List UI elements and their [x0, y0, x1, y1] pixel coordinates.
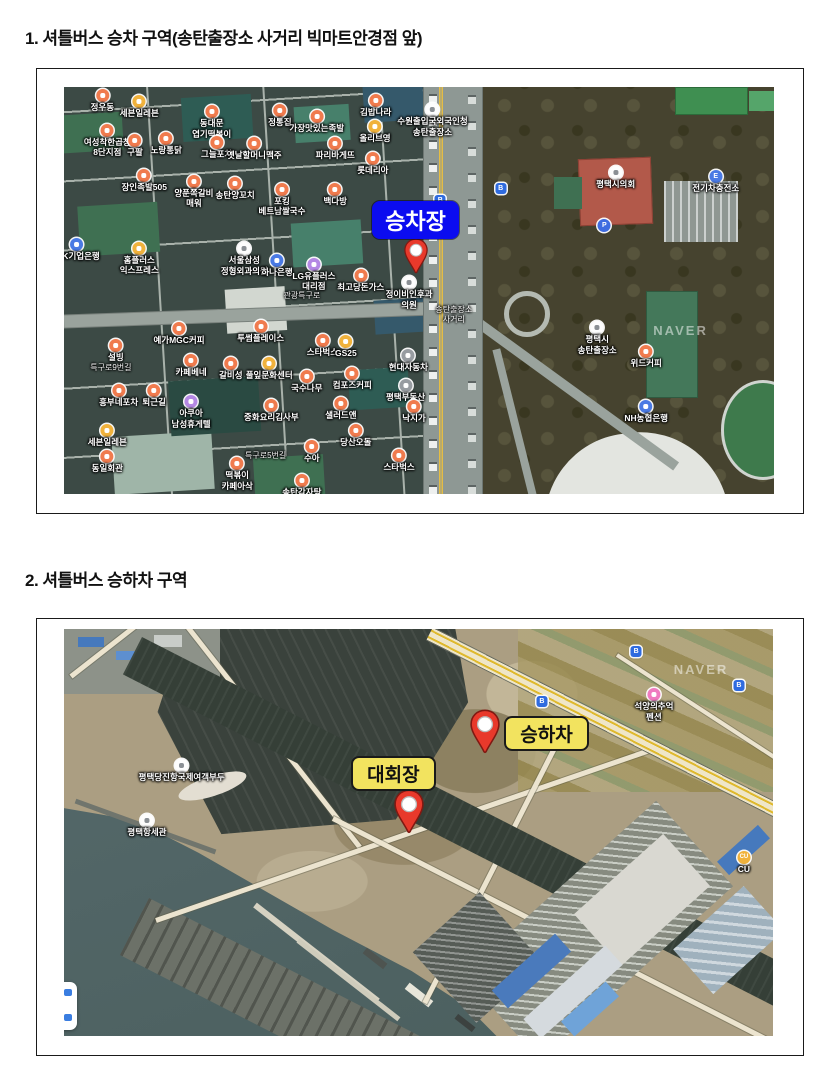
- poi-icon: [640, 400, 653, 413]
- poi-label-text: 흥부네포차: [99, 398, 138, 408]
- map-poi-orange-icon: 파리바게뜨: [316, 137, 355, 161]
- poi-icon: [329, 137, 342, 150]
- poi-label-text: 투썸플레이스: [237, 334, 284, 344]
- poi-icon: [133, 95, 146, 108]
- map-poi-blue-icon: E전기차충전소: [692, 170, 739, 194]
- road-name-label: 특구로5번길: [245, 451, 286, 461]
- poi-label-text: 남성휴게텔: [172, 420, 211, 430]
- poi-icon: [300, 370, 313, 383]
- poi-icon: [366, 152, 379, 165]
- poi-icon: [96, 89, 109, 102]
- poi-icon: [109, 339, 122, 352]
- map-poi-pink-icon: 석양의추억펜션: [634, 688, 673, 722]
- poi-icon: [609, 166, 622, 179]
- map-zoom-control: [64, 982, 77, 1030]
- map-poi-orange-icon: 정우동: [91, 89, 114, 113]
- poi-icon: [273, 104, 286, 117]
- poi-label-text: IBK기업은행: [64, 252, 100, 262]
- poi-label-text: 김밥나라: [360, 108, 391, 118]
- map-poi-orange-icon: 카페베네: [175, 354, 206, 378]
- map-poi-bus-icon: B: [495, 183, 506, 194]
- poi-label-text: 여성착한곱창: [84, 138, 131, 148]
- poi-label-text: 올리브영: [359, 134, 390, 144]
- map-poi-orange-icon: 옛날할머니맥주: [227, 137, 282, 161]
- poi-label-text: 낙지가: [402, 414, 425, 424]
- poi-label-text: GS25: [335, 349, 357, 359]
- map-poi-white-icon: 수원출입국외국인청송탄출장소: [397, 103, 467, 137]
- poi-label-text: 하나은행: [261, 268, 292, 278]
- poi-label-text: 송탄출장소: [578, 346, 617, 356]
- poi-icon: [346, 367, 359, 380]
- poi-icon: [138, 169, 151, 182]
- map-poi-orange-icon: 동일회관: [92, 450, 123, 474]
- document-page: 1. 셔틀버스 승차 구역(송탄출장소 사거리 빅마트안경점 앞) NAVER: [0, 0, 836, 1082]
- map-poi-orange-icon: 흥부네포차: [99, 384, 138, 408]
- poi-icon: [254, 320, 267, 333]
- map-poi-orange-icon: 당산오돌: [340, 424, 371, 448]
- poi-label-text: 송탄출장소: [435, 305, 472, 315]
- poi-label-text: 송탄양꼬치: [216, 191, 255, 201]
- poi-label-text: 매워: [186, 199, 202, 209]
- poi-label-text: 갈비성: [219, 371, 242, 381]
- poi-label-text: 샐러드앤: [325, 411, 356, 421]
- poi-icon: [399, 379, 412, 392]
- poi-icon: [316, 334, 329, 347]
- map-poi-white-icon: 평택시의회: [596, 166, 635, 190]
- poi-label-text: 8단지점: [93, 148, 121, 158]
- poi-label-text: 정통집: [268, 118, 291, 128]
- poi-icon: [408, 400, 421, 413]
- map-poi-orange-icon: 투썸플레이스: [237, 320, 284, 344]
- poi-label-text: 석양의추억: [634, 702, 673, 712]
- poi-label-text: 중화요리김사부: [244, 413, 299, 423]
- poi-icon: [329, 183, 342, 196]
- poi-label-text: 홈플러스: [124, 256, 155, 266]
- poi-label-text: 구팔: [127, 148, 143, 158]
- poi-label-text: 평택부동산: [386, 393, 425, 403]
- road-name-label: 관광특구로: [283, 291, 320, 301]
- poi-label-text: 특구로9번길: [90, 363, 131, 373]
- map-poi-orange-icon: 구팔: [127, 134, 143, 158]
- poi-label-text: 카페베네: [175, 368, 206, 378]
- poi-icon: [160, 132, 173, 145]
- poi-icon: [265, 399, 278, 412]
- poi-label-text: 스타벅스: [307, 348, 338, 358]
- poi-label-text: 세븐일레븐: [88, 438, 127, 448]
- map-poi-orange-icon: 퇴근길: [142, 384, 165, 408]
- map-poi-orange-icon: 동대문엽기떡볶이: [192, 105, 231, 139]
- poi-label-text: 익스프레스: [120, 266, 159, 276]
- poi-label-text: 백다방: [323, 197, 346, 207]
- poi-icon: [403, 276, 416, 289]
- map-poi-orange-icon: 송탄감자탕: [282, 474, 321, 494]
- poi-label-text: 그늘포차: [201, 150, 232, 160]
- poi-label-text: 평택당진항국제여객부두: [139, 773, 225, 783]
- poi-label-text: 의원: [401, 301, 417, 311]
- map2-dropoff-zone-label: 승하차: [504, 716, 588, 751]
- poi-icon: P: [598, 219, 611, 232]
- map-poi-orange-icon: 갈비성: [219, 357, 242, 381]
- map-poi-orange-icon: 샐러드앤: [325, 397, 356, 421]
- map-poi-yellow-icon: 세븐일레븐: [88, 424, 127, 448]
- poi-label-text: 컴포즈커피: [333, 381, 372, 391]
- poi-icon: [368, 120, 381, 133]
- map2-venue-label: 대회장: [351, 756, 435, 791]
- poi-label-text: 수원출입국외국인청: [397, 117, 467, 127]
- poi-label-text: 당산오돌: [340, 438, 371, 448]
- map-poi-orange-icon: 컴포즈커피: [333, 367, 372, 391]
- poi-icon: [305, 440, 318, 453]
- map-poi-white-icon: 평택항세관: [127, 814, 166, 838]
- road-name-label: 송탄출장소사거리: [435, 305, 472, 325]
- map-poi-orange-icon: 최고당돈가스: [337, 269, 384, 293]
- poi-label-text: 평택시: [585, 335, 608, 345]
- poi-label-text: 양푼쪽갈비: [174, 189, 213, 199]
- poi-label-text: 예가MGC커피: [153, 336, 204, 346]
- naver-watermark: NAVER: [674, 662, 729, 677]
- poi-label-text: 퇴근길: [142, 398, 165, 408]
- map-poi-orange-icon: 여성착한곱창8단지점: [84, 124, 131, 158]
- poi-label-text: 펜션: [646, 713, 662, 723]
- poi-icon: B: [733, 680, 744, 691]
- poi-icon: [369, 94, 382, 107]
- poi-icon: [248, 137, 261, 150]
- poi-icon: [185, 395, 198, 408]
- map-poi-yellow-icon: 홈플러스익스프레스: [120, 242, 159, 276]
- map-poi-orange-icon: 중화요리김사부: [244, 399, 299, 423]
- map-poi-orange-icon: 장인족발505: [121, 169, 166, 193]
- poi-label-text: 특구로5번길: [245, 451, 286, 461]
- road-name-label: 특구로9번길: [90, 363, 131, 373]
- poi-icon: [349, 424, 362, 437]
- map-poi-yellow-icon: 올리브영: [359, 120, 390, 144]
- poi-label-text: 가장맛있는족발: [289, 124, 344, 134]
- poi-icon: [101, 424, 114, 437]
- poi-label-text: 대리점: [302, 282, 325, 292]
- map-poi-gray-icon: 현대자동차: [389, 349, 428, 373]
- poi-icon: [148, 384, 161, 397]
- poi-icon: [229, 177, 242, 190]
- poi-label-text: 엽기떡볶이: [192, 130, 231, 140]
- poi-icon: [591, 321, 604, 334]
- section2-heading: 2. 셔틀버스 승하차 구역: [25, 566, 187, 591]
- poi-label-text: 정형외과의원: [221, 267, 268, 277]
- map-poi-yellow-icon: 세븐일레븐: [120, 95, 159, 119]
- poi-icon: [295, 474, 308, 487]
- poi-label-text: 전기차충전소: [692, 184, 739, 194]
- poi-label-text: 옛날할머니맥주: [227, 151, 282, 161]
- poi-icon: [307, 258, 320, 271]
- map-poi-gray-icon: 평택부동산: [386, 379, 425, 403]
- poi-label-text: LG유플러스: [292, 272, 335, 282]
- map-poi-blue-icon: IBK기업은행: [64, 238, 100, 262]
- poi-label-text: 국수나무: [291, 384, 322, 394]
- map1-boarding-zone-label: 승차장: [372, 201, 459, 239]
- map1-frame: NAVER 정우동세븐일레븐동대문엽기떡볶이정통집가장맛있는족발김밥나라수원출입…: [36, 68, 804, 514]
- map-poi-white-icon: 서울삼성정형외과의원: [221, 242, 268, 276]
- map2-satellite-image: NAVER 평택당진항국제여객부두평택항세관석양의추억펜션CUCUBBB 대회장…: [64, 629, 773, 1036]
- poi-label-text: 장인족발505: [121, 183, 166, 193]
- poi-icon: [128, 134, 141, 147]
- poi-label-text: 파리바게뜨: [316, 151, 355, 161]
- map-poi-orange-icon: 수아: [304, 440, 320, 464]
- poi-label-text: 베트남쌀국수: [259, 207, 306, 217]
- poi-icon: [402, 349, 415, 362]
- section1-heading: 1. 셔틀버스 승차 구역(송탄출장소 사거리 빅마트안경점 앞): [25, 24, 422, 49]
- map-poi-orange-icon: 떡볶이카페아삭: [222, 457, 253, 491]
- poi-icon: [271, 254, 284, 267]
- poi-label-text: 설빙: [108, 353, 124, 363]
- poi-label-text: 롯데리아: [357, 166, 388, 176]
- map-poi-purple-icon: LG유플러스대리점: [292, 258, 335, 292]
- poi-icon: CU: [737, 851, 750, 864]
- poi-icon: [310, 110, 323, 123]
- map1-poi-layer: 정우동세븐일레븐동대문엽기떡볶이정통집가장맛있는족발김밥나라수원출입국외국인청송…: [64, 87, 774, 494]
- map-poi-yellow-icon: GS25: [335, 335, 357, 359]
- map1-location-pin: [403, 238, 429, 274]
- poi-icon: [175, 759, 188, 772]
- poi-label-text: 수아: [304, 454, 320, 464]
- poi-label-text: 카페아삭: [222, 482, 253, 492]
- map-poi-orange-icon: 포킹베트남쌀국수: [259, 183, 306, 217]
- poi-label-text: 위드커피: [631, 359, 662, 369]
- poi-icon: [101, 450, 114, 463]
- map-poi-orange-icon: 스타벅스: [307, 334, 338, 358]
- poi-icon: [263, 357, 276, 370]
- poi-label-text: 최고당돈가스: [337, 283, 384, 293]
- map-poi-cu-icon: CUCU: [737, 851, 750, 875]
- poi-icon: [70, 238, 83, 251]
- map-poi-orange-icon: 스타벅스: [383, 449, 414, 473]
- map2-frame: NAVER 평택당진항국제여객부두평택항세관석양의추억펜션CUCUBBB 대회장…: [36, 618, 804, 1056]
- poi-icon: [275, 183, 288, 196]
- map-poi-p-icon: P: [598, 219, 611, 232]
- poi-icon: [133, 242, 146, 255]
- poi-icon: [238, 242, 251, 255]
- map-poi-orange-icon: 위드커피: [631, 345, 662, 369]
- poi-icon: [187, 175, 200, 188]
- poi-label-text: CU: [738, 865, 750, 875]
- poi-label-text: 떡볶이: [226, 471, 249, 481]
- map-poi-orange-icon: 양푼쪽갈비매워: [174, 175, 213, 209]
- poi-icon: [339, 335, 352, 348]
- poi-label-text: 사거리: [443, 315, 465, 325]
- poi-label-text: 평택항세관: [127, 828, 166, 838]
- poi-icon: [334, 397, 347, 410]
- poi-icon: E: [709, 170, 722, 183]
- poi-label-text: 정우동: [91, 103, 114, 113]
- map-poi-orange-icon: 설빙: [108, 339, 124, 363]
- poi-icon: B: [536, 696, 547, 707]
- poi-icon: [173, 322, 186, 335]
- map2-dropoff-pin: [469, 709, 501, 754]
- poi-label-text: 평택시의회: [596, 180, 635, 190]
- poi-icon: [205, 105, 218, 118]
- poi-icon: [210, 136, 223, 149]
- map-poi-orange-icon: 가장맛있는족발: [289, 110, 344, 134]
- map-poi-orange-icon: 낙지가: [402, 400, 425, 424]
- poi-icon: [647, 688, 660, 701]
- poi-icon: [426, 103, 439, 116]
- poi-icon: [393, 449, 406, 462]
- poi-icon: B: [631, 646, 642, 657]
- map-poi-bus-icon: B: [733, 680, 744, 691]
- poi-label-text: 풀잎문화센터: [246, 371, 293, 381]
- poi-icon: [112, 384, 125, 397]
- poi-icon: [354, 269, 367, 282]
- poi-label-text: 동대문: [200, 119, 223, 129]
- poi-label-text: 스타벅스: [383, 463, 414, 473]
- map-poi-orange-icon: 롯데리아: [357, 152, 388, 176]
- poi-label-text: 송탄감자탕: [282, 488, 321, 494]
- poi-icon: [224, 357, 237, 370]
- map-poi-white-icon: 정이비인후과의원: [386, 276, 433, 310]
- poi-icon: [101, 124, 114, 137]
- poi-label-text: 현대자동차: [389, 363, 428, 373]
- map-poi-blue-icon: NH농협은행: [624, 400, 668, 424]
- poi-label-text: 서울삼성: [229, 256, 260, 266]
- poi-label-text: 송탄출장소: [413, 128, 452, 138]
- map-poi-bus-icon: B: [536, 696, 547, 707]
- map-poi-blue-icon: 하나은행: [261, 254, 292, 278]
- map-poi-bus-icon: B: [631, 646, 642, 657]
- map-poi-yellow-icon: 풀잎문화센터: [246, 357, 293, 381]
- map-poi-orange-icon: 김밥나라: [360, 94, 391, 118]
- poi-label-text: 동일회관: [92, 464, 123, 474]
- poi-icon: [640, 345, 653, 358]
- poi-icon: [140, 814, 153, 827]
- poi-icon: [185, 354, 198, 367]
- map-poi-white-icon: 평택시송탄출장소: [578, 321, 617, 355]
- map-poi-orange-icon: 그늘포차: [201, 136, 232, 160]
- map-poi-orange-icon: 노랑통닭: [151, 132, 182, 156]
- poi-label-text: 아쿠아: [179, 409, 202, 419]
- map1-satellite-image: NAVER 정우동세븐일레븐동대문엽기떡볶이정통집가장맛있는족발김밥나라수원출입…: [64, 87, 774, 494]
- poi-label-text: 관광특구로: [283, 291, 320, 301]
- map-poi-orange-icon: 국수나무: [291, 370, 322, 394]
- map-poi-orange-icon: 예가MGC커피: [153, 322, 204, 346]
- poi-label-text: 정이비인후과: [386, 290, 433, 300]
- poi-label-text: 세븐일레븐: [120, 109, 159, 119]
- map-poi-orange-icon: 정통집: [268, 104, 291, 128]
- poi-icon: [231, 457, 244, 470]
- poi-icon: B: [495, 183, 506, 194]
- naver-watermark: NAVER: [653, 323, 708, 338]
- poi-label-text: NH농협은행: [624, 414, 668, 424]
- map-poi-orange-icon: 송탄양꼬치: [216, 177, 255, 201]
- map-poi-orange-icon: 백다방: [323, 183, 346, 207]
- map2-venue-pin: [393, 789, 425, 834]
- map-poi-purple-icon: 아쿠아남성휴게텔: [172, 395, 211, 429]
- poi-label-text: 포킹: [274, 197, 290, 207]
- map-poi-white-icon: 평택당진항국제여객부두: [139, 759, 225, 783]
- poi-label-text: 노랑통닭: [151, 146, 182, 156]
